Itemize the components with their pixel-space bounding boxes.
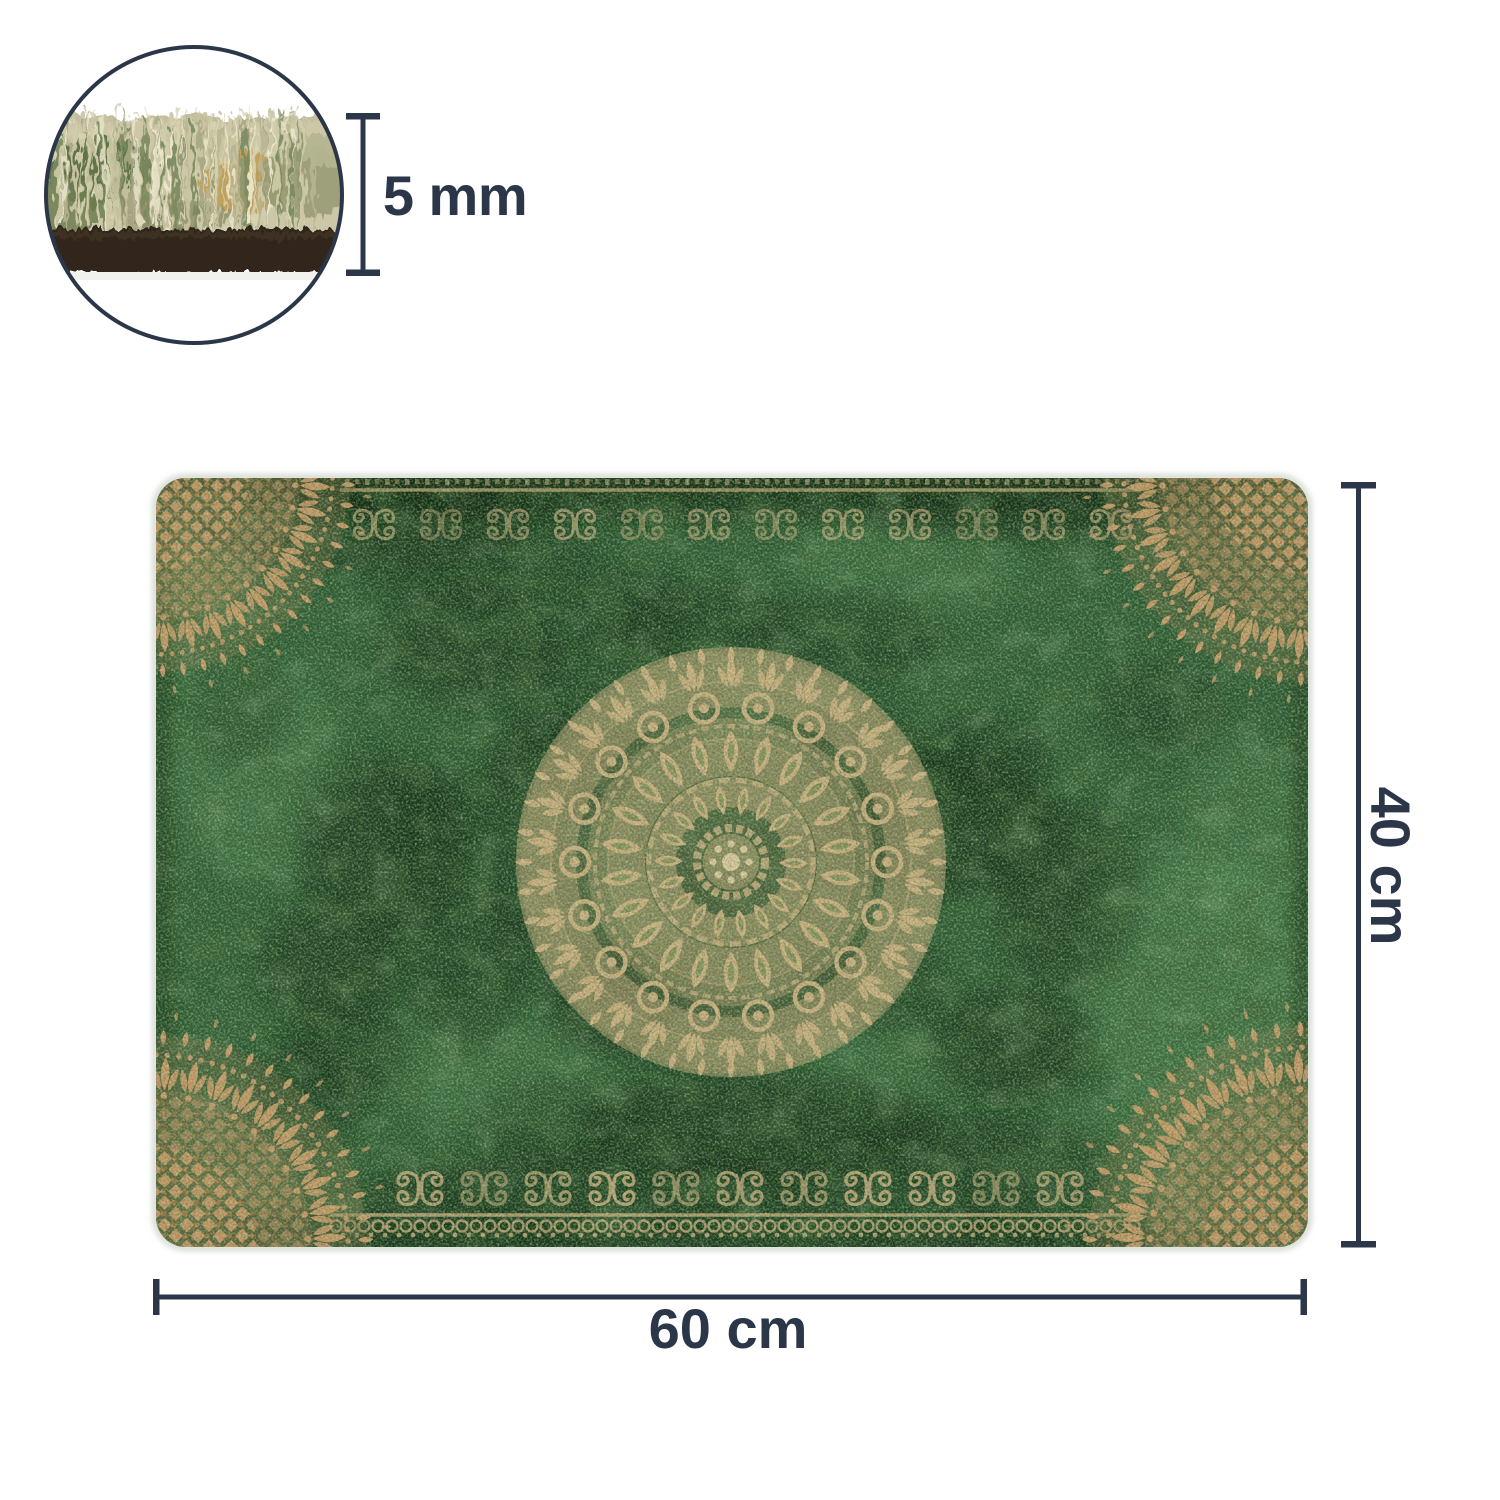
svg-text:60 cm: 60 cm [649,1297,808,1360]
svg-text:5 mm: 5 mm [383,164,527,227]
svg-text:40 cm: 40 cm [1359,787,1422,946]
